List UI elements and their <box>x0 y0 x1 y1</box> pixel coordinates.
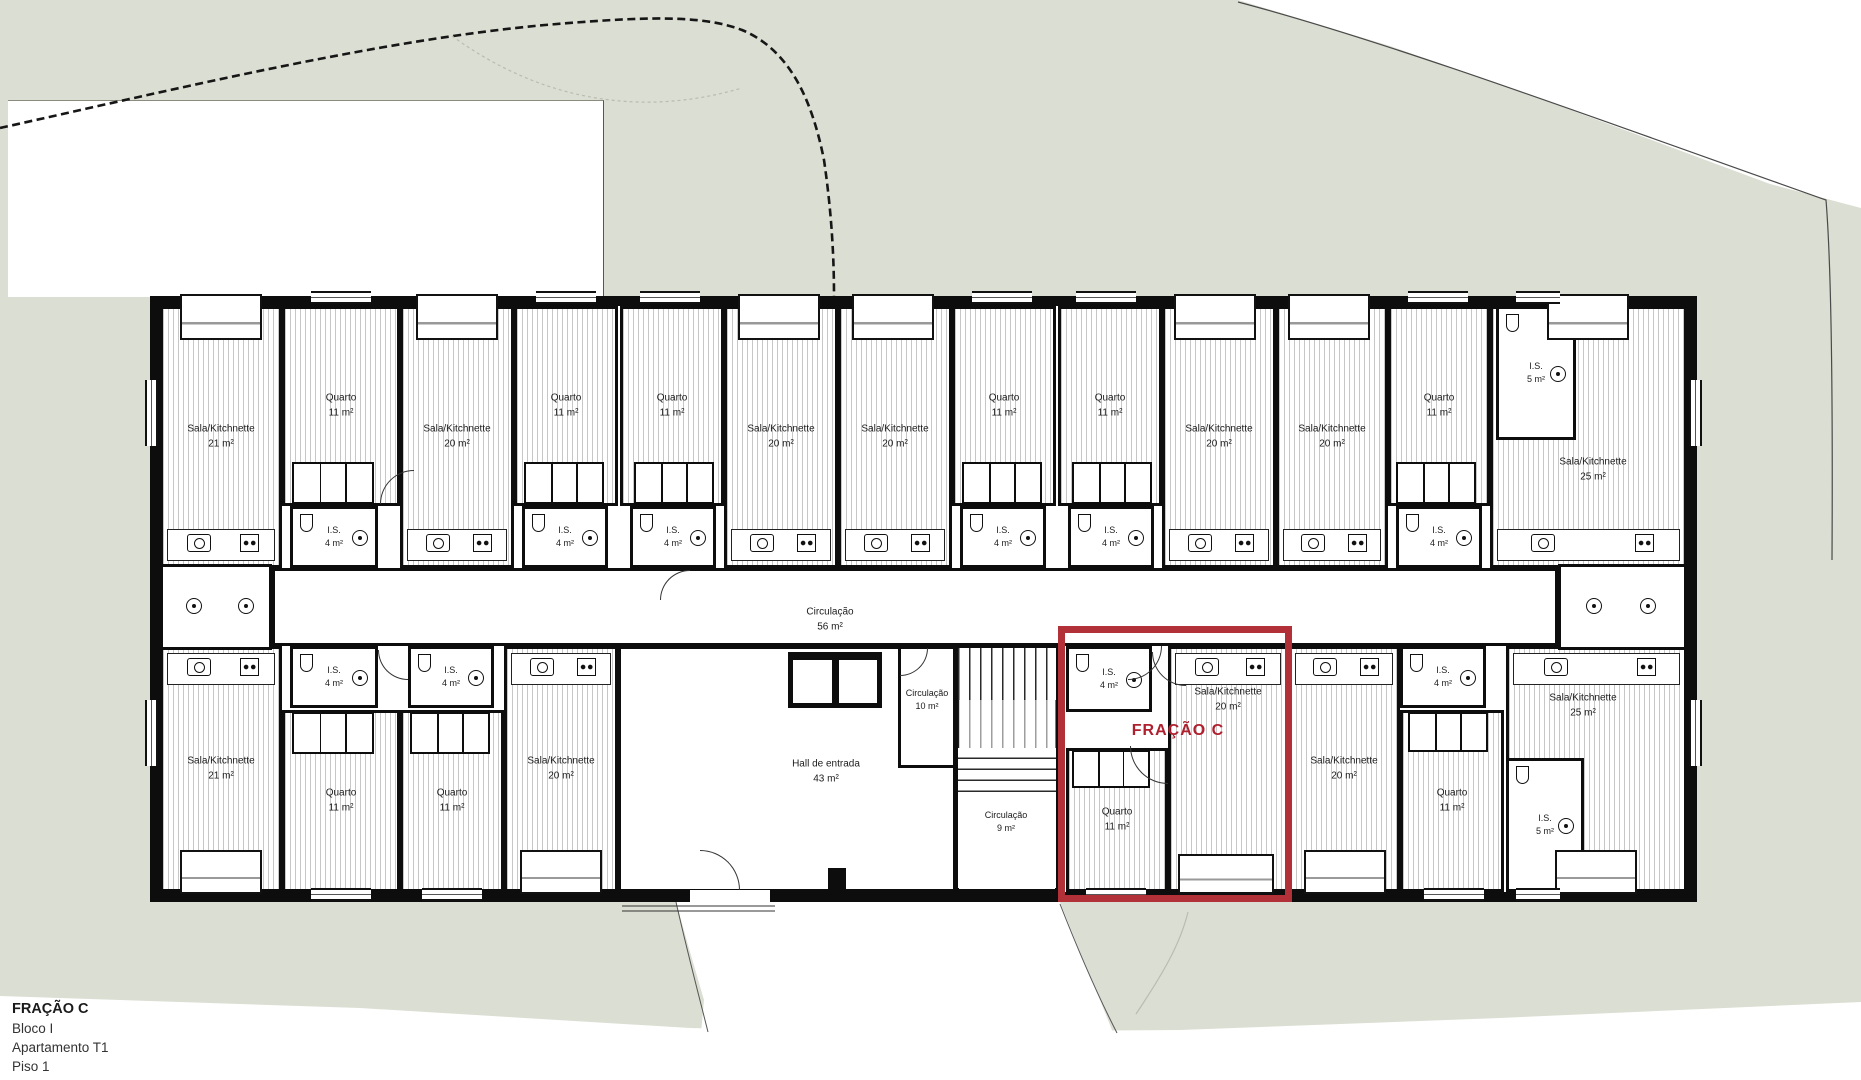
toilet-icon <box>1406 514 1419 532</box>
window-niche <box>852 294 934 340</box>
toilet-icon <box>1410 654 1423 672</box>
toilet-icon <box>418 654 431 672</box>
title-block: FRAÇÃO C Bloco I Apartamento T1 Piso 1 <box>12 1000 109 1076</box>
kitchen-counter <box>1513 653 1680 685</box>
shower-valve-icon <box>1020 530 1036 546</box>
room-is-t4 <box>960 506 1046 568</box>
room-is-t2 <box>522 506 608 568</box>
window-niche <box>520 850 602 894</box>
toilet-icon <box>532 514 545 532</box>
toilet-icon <box>640 514 653 532</box>
kitchen-counter <box>167 653 275 685</box>
kitchen-counter <box>845 529 945 561</box>
room-util-left <box>160 564 272 650</box>
window-niche <box>180 850 262 894</box>
room-is-t6 <box>1396 506 1482 568</box>
sink-icon <box>187 534 211 552</box>
room-closet-t6 <box>1396 462 1476 504</box>
kitchen-counter <box>511 653 611 685</box>
shower-valve-icon <box>1460 670 1476 686</box>
stair-flight-up <box>958 648 1056 700</box>
room-sala-t2 <box>400 306 514 568</box>
window-niche <box>1304 850 1386 894</box>
title-apartment-type: Apartamento T1 <box>12 1038 109 1057</box>
stove-icon <box>797 534 816 552</box>
window-niche <box>1288 294 1370 340</box>
room-is-t5 <box>1068 506 1154 568</box>
shower-valve-icon <box>582 530 598 546</box>
sink-icon <box>864 534 888 552</box>
room-closet-t3 <box>634 462 714 504</box>
window <box>1076 291 1136 304</box>
stair-flight-low <box>958 748 1056 792</box>
window-niche <box>180 294 262 340</box>
washer-icon <box>186 598 202 614</box>
window <box>311 291 371 304</box>
title-floor: Piso 1 <box>12 1057 109 1076</box>
toilet-icon <box>300 654 313 672</box>
shower-valve-icon <box>1550 366 1566 382</box>
room-closet-t2 <box>524 462 604 504</box>
window <box>422 888 482 901</box>
room-closet-t4 <box>962 462 1042 504</box>
room-closet-b2 <box>410 712 490 754</box>
room-is-b2 <box>408 646 494 708</box>
site-cutout-topleft <box>8 100 604 297</box>
shower-valve-icon <box>352 530 368 546</box>
window <box>1689 700 1702 766</box>
window-niche <box>416 294 498 340</box>
window <box>311 888 371 901</box>
stove-icon <box>911 534 930 552</box>
room-is-b3 <box>1400 646 1486 708</box>
washer-icon <box>1640 598 1656 614</box>
elevator-cab <box>793 660 832 703</box>
window <box>1408 291 1468 304</box>
sink-icon <box>1188 534 1212 552</box>
sink-icon <box>1544 658 1568 676</box>
shower-valve-icon <box>468 670 484 686</box>
room-closet-b1 <box>292 712 374 754</box>
sink-icon <box>1301 534 1325 552</box>
fracao-c-highlight-box <box>1058 626 1292 902</box>
elevator-block <box>788 652 882 708</box>
sink-icon <box>187 658 211 676</box>
toilet-icon <box>300 514 313 532</box>
stove-icon <box>240 658 259 676</box>
room-sala-t6 <box>1276 306 1388 568</box>
room-closet-b3 <box>1408 712 1488 752</box>
kitchen-counter <box>1283 529 1381 561</box>
toilet-icon <box>970 514 983 532</box>
room-sala-t4 <box>838 306 952 568</box>
window <box>1516 291 1560 304</box>
window <box>145 380 158 446</box>
sink-icon <box>750 534 774 552</box>
sink-icon <box>1531 534 1555 552</box>
room-corridor <box>272 568 1558 646</box>
kitchen-counter <box>731 529 831 561</box>
elevator-cab <box>839 660 878 703</box>
window <box>536 291 596 304</box>
room-is-t1 <box>290 506 378 568</box>
stove-icon <box>1637 658 1656 676</box>
kitchen-counter <box>167 529 275 561</box>
washer-icon <box>1586 598 1602 614</box>
toilet-icon <box>1506 314 1519 332</box>
shower-valve-icon <box>1558 818 1574 834</box>
window-niche <box>1555 850 1637 894</box>
shower-valve-icon <box>352 670 368 686</box>
stove-icon <box>1360 658 1379 676</box>
room-closet-t5 <box>1072 462 1152 504</box>
window <box>690 890 770 902</box>
shower-valve-icon <box>690 530 706 546</box>
kitchen-counter <box>1169 529 1269 561</box>
room-is-b1 <box>290 646 378 708</box>
window <box>1424 888 1484 901</box>
toilet-icon <box>1516 766 1529 784</box>
sink-icon <box>1313 658 1337 676</box>
stove-icon <box>1348 534 1367 552</box>
stove-icon <box>1235 534 1254 552</box>
kitchen-counter <box>1497 529 1680 561</box>
stove-icon <box>240 534 259 552</box>
room-sala-t3 <box>724 306 838 568</box>
stove-icon <box>577 658 596 676</box>
room-is-t3 <box>630 506 716 568</box>
kitchen-counter <box>407 529 507 561</box>
window <box>640 291 700 304</box>
room-sala-t1 <box>160 306 282 568</box>
window <box>972 291 1032 304</box>
title-block-name: Bloco I <box>12 1019 109 1038</box>
title-fraction: FRAÇÃO C <box>12 1000 109 1019</box>
shower-valve-icon <box>1128 530 1144 546</box>
room-circ9 <box>958 792 1056 888</box>
room-sala-t5 <box>1162 306 1276 568</box>
stair-flight-mid <box>958 700 1056 748</box>
stove-icon <box>473 534 492 552</box>
window <box>1516 888 1560 901</box>
washer-icon <box>238 598 254 614</box>
window-niche <box>738 294 820 340</box>
entrance-column <box>828 868 846 894</box>
window <box>1689 380 1702 446</box>
fracao-c-highlight-label: FRAÇÃO C <box>1132 722 1224 740</box>
floor-plan-canvas: Sala/Kitchnette21 m²Quarto11 m²I.S.4 m²S… <box>0 0 1861 1080</box>
window <box>145 700 158 766</box>
stove-icon <box>1635 534 1654 552</box>
room-util-right <box>1558 564 1687 650</box>
shower-valve-icon <box>1456 530 1472 546</box>
window-niche <box>1174 294 1256 340</box>
sink-icon <box>426 534 450 552</box>
toilet-icon <box>1078 514 1091 532</box>
sink-icon <box>530 658 554 676</box>
room-closet-t1 <box>292 462 374 504</box>
kitchen-counter <box>1295 653 1393 685</box>
